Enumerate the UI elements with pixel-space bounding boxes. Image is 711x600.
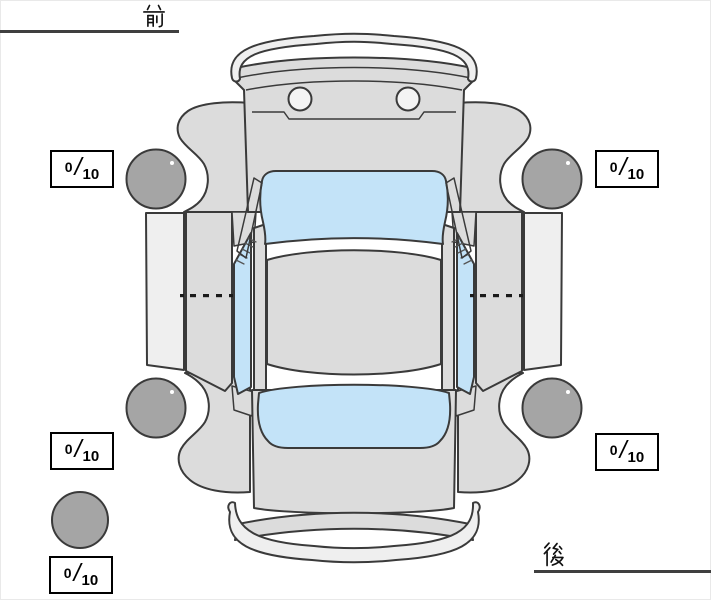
score-box-front-right: 0 / 10 <box>595 150 659 188</box>
rear-end <box>228 385 479 563</box>
car-condition-diagram: 前 後 0 / 10 0 / 10 0 / 10 0 / 10 0 / 10 <box>0 0 711 600</box>
score-max: 10 <box>83 448 100 465</box>
right-roof-rail <box>442 224 454 404</box>
score-separator: / <box>620 155 627 180</box>
score-max: 10 <box>83 166 100 183</box>
rear-right-tire <box>523 379 582 438</box>
right-door-panel <box>476 212 522 391</box>
score-max: 10 <box>628 449 645 466</box>
rear-underline <box>534 570 711 573</box>
right-sill-panel <box>524 213 562 370</box>
rear-left-tire <box>127 379 186 438</box>
front-right-tire <box>523 150 582 209</box>
score-value: 0 <box>65 159 73 175</box>
score-separator: / <box>74 561 81 586</box>
car-top-view <box>0 0 711 600</box>
score-box-spare: 0 / 10 <box>49 556 113 594</box>
left-door-panel <box>186 212 232 391</box>
left-side-window-glass <box>234 233 251 394</box>
score-value: 0 <box>610 442 618 458</box>
rear-kanji-glyph <box>541 541 568 568</box>
rear-direction-label: 後 <box>541 541 568 573</box>
score-separator: / <box>75 437 82 462</box>
left-headlight <box>289 88 312 111</box>
score-box-rear-left: 0 / 10 <box>50 432 114 470</box>
rear-window-glass <box>258 385 450 448</box>
score-separator: / <box>75 155 82 180</box>
rear-bumper <box>235 513 473 540</box>
left-sill-panel <box>146 213 184 370</box>
score-value: 0 <box>610 159 618 175</box>
front-underline <box>0 30 179 33</box>
right-side-window-glass <box>457 233 474 394</box>
score-max: 10 <box>82 572 99 589</box>
score-box-front-left: 0 / 10 <box>50 150 114 188</box>
score-value: 0 <box>64 565 72 581</box>
left-roof-rail <box>254 224 266 404</box>
score-max: 10 <box>628 166 645 183</box>
windshield-glass <box>260 171 448 244</box>
spare-tire <box>52 492 108 548</box>
front-left-tire <box>127 150 186 209</box>
score-value: 0 <box>65 441 73 457</box>
front-kanji-glyph <box>141 3 167 29</box>
right-headlight <box>397 88 420 111</box>
roof-panel <box>267 250 441 374</box>
score-box-rear-right: 0 / 10 <box>595 433 659 471</box>
score-separator: / <box>620 438 627 463</box>
